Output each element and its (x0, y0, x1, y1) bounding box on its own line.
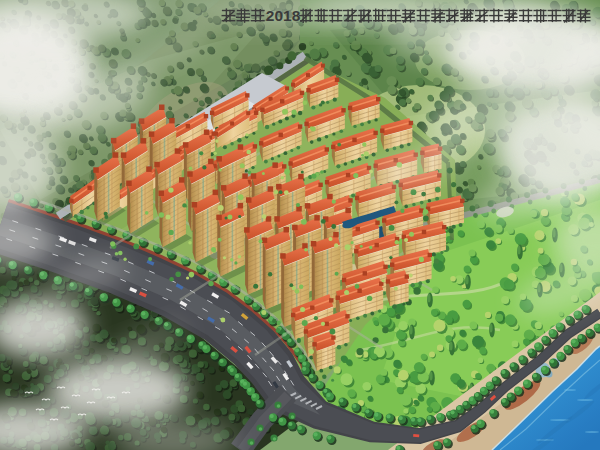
svg-text:2018: 2018 (266, 7, 301, 24)
